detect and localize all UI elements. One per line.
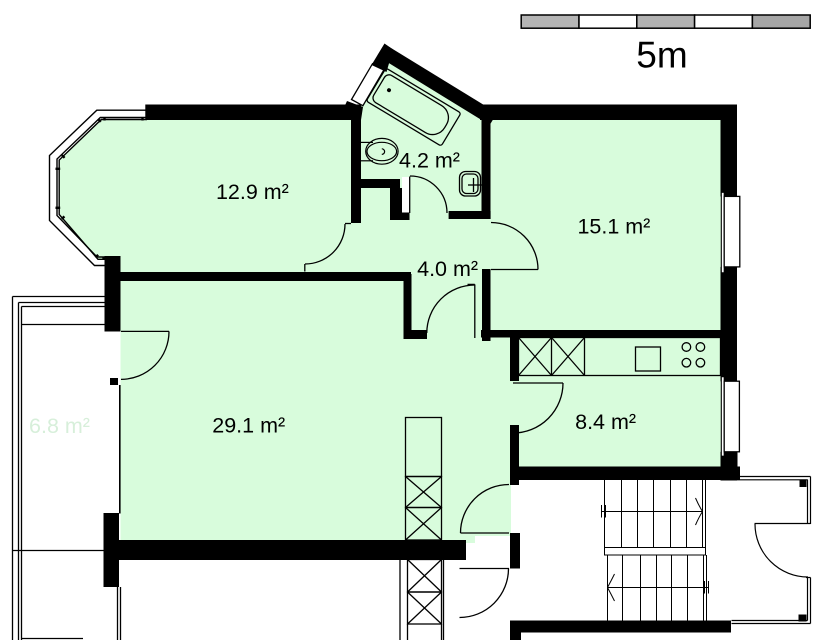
svg-text:8.4 m²: 8.4 m² [575, 410, 636, 434]
svg-text:12.9 m²: 12.9 m² [216, 180, 289, 204]
svg-text:6.8 m²: 6.8 m² [29, 414, 90, 438]
svg-text:4.0 m²: 4.0 m² [417, 257, 478, 281]
svg-text:15.1 m²: 15.1 m² [577, 215, 650, 239]
svg-text:29.1 m²: 29.1 m² [212, 414, 285, 438]
svg-text:5m: 5m [636, 35, 687, 76]
svg-text:4.2 m²: 4.2 m² [399, 149, 460, 173]
